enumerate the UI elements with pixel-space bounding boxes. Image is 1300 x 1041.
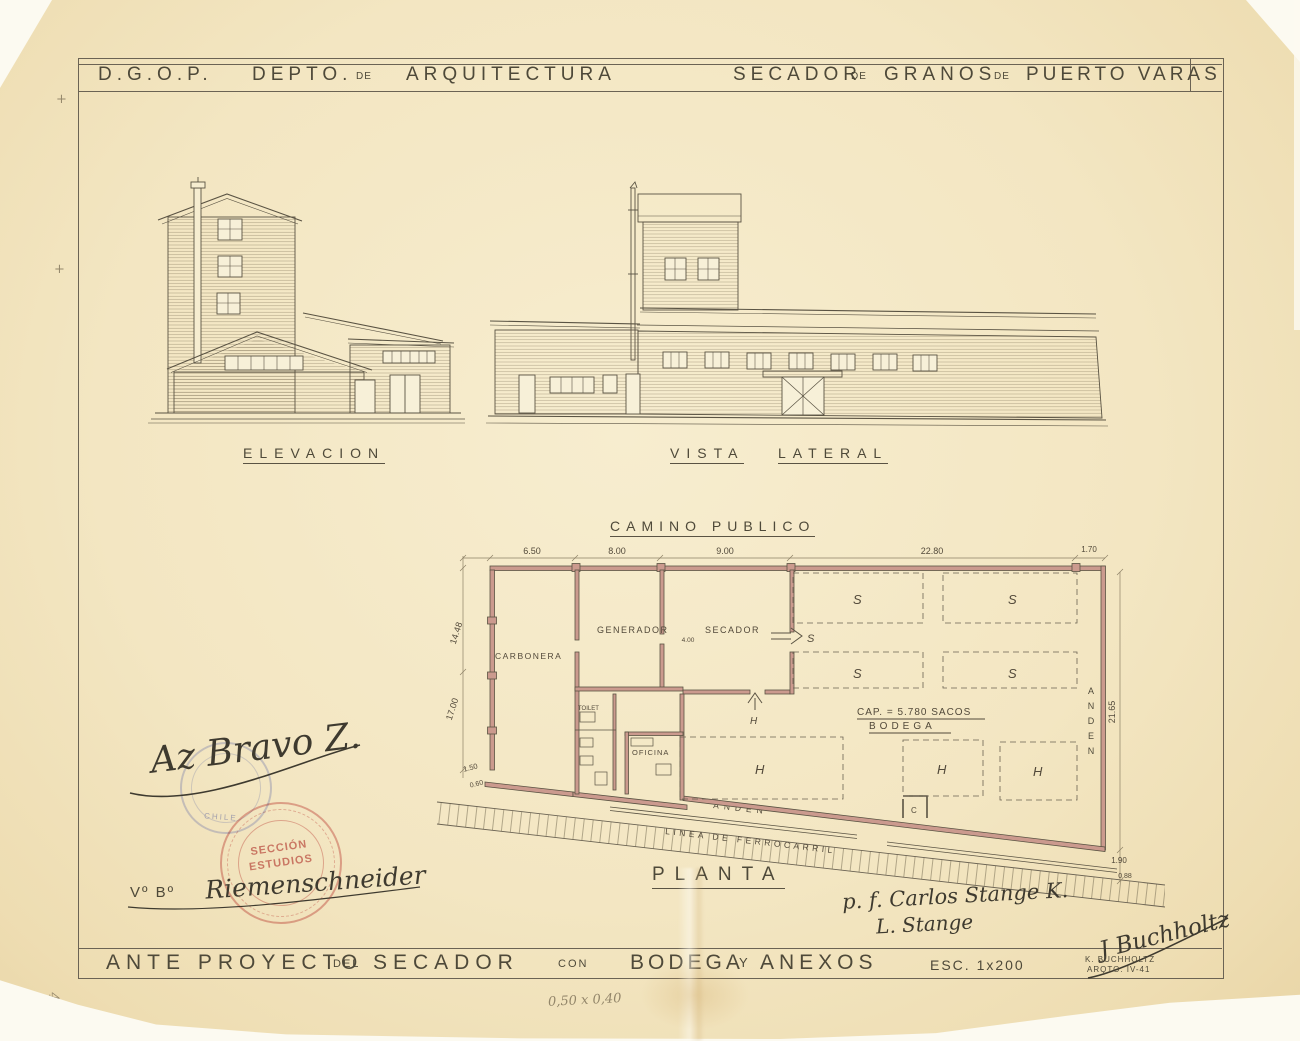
floor-plan-drawing: LINEA DE FERROCARRIL ANDEN xyxy=(425,512,1165,912)
dim-secador: 4.00 xyxy=(682,637,695,644)
footer-title-4: ANEXOS xyxy=(760,951,878,975)
footer-architect-name: K. BUCHHOLTZ xyxy=(1085,955,1155,964)
dim-right-2: 1.90 xyxy=(1111,856,1127,865)
header-de-2: DE xyxy=(851,71,867,82)
header-project-2: GRANOS xyxy=(884,64,996,86)
scan-corner-top-left xyxy=(0,0,52,88)
elevation-label: ELEVACION xyxy=(243,445,385,464)
bodega-label: BODEGA xyxy=(869,721,936,732)
header-de-1: DE xyxy=(356,71,372,82)
room-generador: GENERADOR xyxy=(597,625,669,635)
dim-top-2: 8.00 xyxy=(608,546,626,556)
s-label-3: S xyxy=(853,666,862,681)
anden-right-label: ANDEN xyxy=(1081,686,1096,778)
header-de-3: DE xyxy=(994,71,1010,82)
footer-architect-title: ARQTO. IV-41 xyxy=(1087,965,1150,974)
s-label-2: S xyxy=(1008,592,1017,607)
flow-arrow-s xyxy=(771,628,802,644)
dim-top-1: 6.50 xyxy=(523,546,541,556)
lateral-label-lateral: LATERAL xyxy=(778,445,888,464)
drawing-sheet: D.G.O.P. DEPTO. DE ARQUITECTURA SECADOR … xyxy=(0,0,1300,1041)
bottom-stain xyxy=(640,960,750,1030)
header-org: D.G.O.P. xyxy=(98,64,213,86)
dim-left-4: 0.60 xyxy=(469,779,484,789)
h-label-1: H xyxy=(755,762,765,777)
door-arrow-h-label: H xyxy=(750,716,758,727)
dim-left-3: 1.50 xyxy=(462,761,478,773)
dim-right-3: 0.88 xyxy=(1118,873,1132,880)
h-label-2: H xyxy=(937,762,947,777)
footer-con: CON xyxy=(558,958,588,970)
h-label-3: H xyxy=(1033,764,1043,779)
room-oficina: OFICINA xyxy=(632,748,669,757)
flow-arrow-s-label: S xyxy=(807,633,815,645)
footer-del: DEL xyxy=(333,958,360,970)
dim-top-3: 9.00 xyxy=(716,546,734,556)
room-toilet: TOILET xyxy=(578,706,599,712)
footer-title-1: ANTE PROYECTO xyxy=(106,951,363,975)
register-mark-1: + xyxy=(56,92,67,107)
s-label-1: S xyxy=(853,592,862,607)
header-dept: DEPTO. xyxy=(252,64,352,86)
title-band-bottom-line xyxy=(78,91,1222,92)
scan-corner-top-right xyxy=(1246,0,1300,62)
c-room-label: C xyxy=(911,806,917,815)
storage-areas xyxy=(680,573,1077,800)
footer-title-2: SECADOR xyxy=(373,951,519,975)
bodega-capacity: CAP. = 5.780 SACOS xyxy=(857,707,971,718)
footer-scale: ESC. 1x200 xyxy=(930,957,1025,973)
s-label-4: S xyxy=(1008,666,1017,681)
delegate-signature-2: L. Stange xyxy=(875,909,973,938)
lateral-label-vista: VISTA xyxy=(670,445,744,464)
door-arrow-h xyxy=(748,693,762,710)
header-project-3: PUERTO VARAS xyxy=(1026,64,1221,86)
room-secador: SECADOR xyxy=(705,625,760,635)
dim-left-1: 14.48 xyxy=(448,621,464,646)
lateral-view-drawing xyxy=(486,178,1111,473)
sheet-size-note: 0,50 x 0,40 xyxy=(548,991,622,1010)
dim-top-5: 1.70 xyxy=(1081,545,1097,554)
footer-band-top-line xyxy=(78,948,1222,949)
register-mark-2: + xyxy=(54,262,65,277)
room-carbonera: CARBONERA xyxy=(495,651,562,661)
scan-edge-right xyxy=(1294,0,1300,330)
header-project-1: SECADOR xyxy=(733,64,862,86)
vobo-label: Vº Bº xyxy=(130,884,175,901)
elevation-drawing xyxy=(143,173,478,471)
dim-right-1: 21.65 xyxy=(1107,701,1117,724)
dim-top-4: 22.80 xyxy=(921,546,944,556)
header-dept-name: ARQUITECTURA xyxy=(406,64,616,86)
